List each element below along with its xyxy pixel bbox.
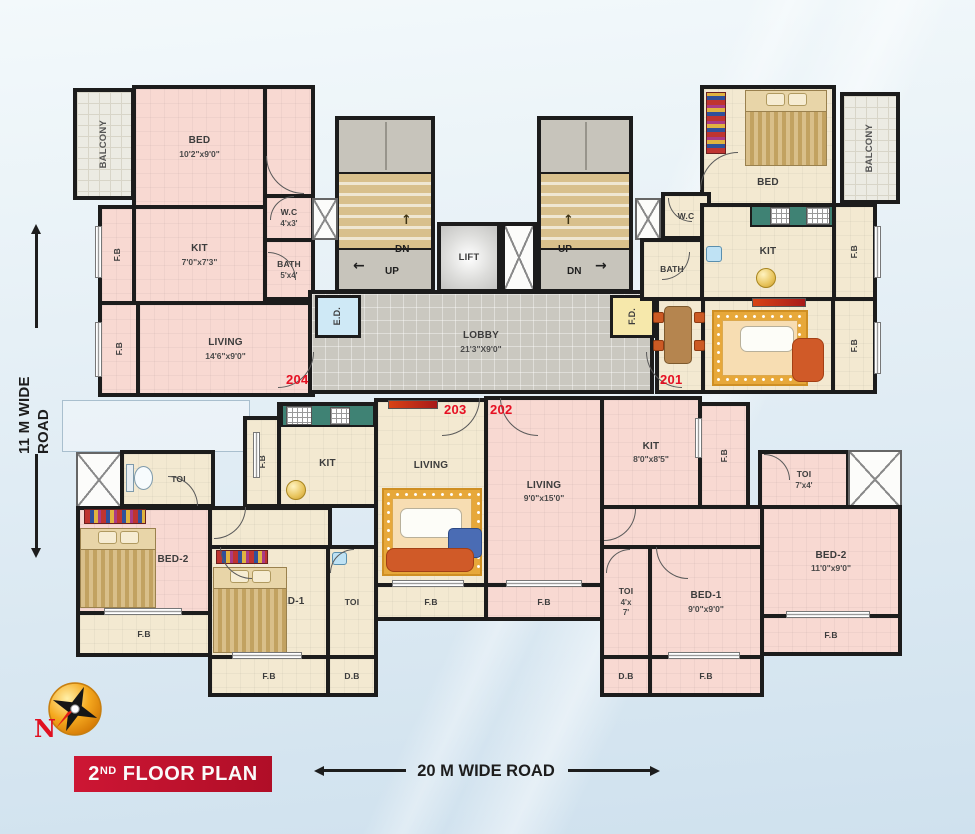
room-dims: 7' [623,608,629,618]
window-icon [253,432,260,478]
room-dims: 4'x [621,598,632,608]
room-label: LIVING [527,480,562,493]
terrace-outline [62,400,250,452]
rug-icon [84,509,146,524]
room-label: TOI [797,469,812,480]
left-road-label: 11 M WIDE ROAD [16,328,54,454]
fd-label: F.D. [627,308,638,325]
balcony-top-right: BALCONY [840,92,900,204]
room-label: LIVING [378,460,484,473]
room-label: BALCONY [864,124,876,172]
room-fb-203: F.B [374,583,488,621]
room-label: BED [189,135,211,148]
pillow-icon [746,91,826,109]
arrow-left-head [314,766,324,776]
column-shaft-left-icon [312,198,338,240]
staircase-right: ↑ UP DN → [537,116,633,293]
arrow-down-head [31,548,41,558]
room-label: F.B [824,630,837,641]
window-icon [392,580,464,587]
stove-icon [770,207,790,225]
electrical-duct: E.D. [315,295,361,338]
room-dims: 7'x4' [795,481,812,491]
room-dims: 14'6"x9'0" [205,351,245,361]
balcony-top-left: BALCONY [73,88,135,200]
pot-icon [286,480,306,500]
room-label: KIT [319,458,336,471]
column-shaft-right-icon [635,198,661,240]
blanket-icon [214,588,286,652]
arrow-line [568,769,650,772]
room-label: D.B [344,671,359,682]
room-fb-202-bottom-2: F.B [648,655,764,697]
room-label: BED-1 [690,590,721,603]
room-label: F.B [849,245,860,258]
room-label: F.B [699,671,712,682]
window-icon [104,608,182,615]
stair-divider [385,122,387,170]
arrow-line [324,769,406,772]
room-label: TOI [345,597,360,608]
window-icon [786,611,870,618]
unit-number-201: 201 [660,372,683,387]
room-dims: 9'0"x15'0" [524,493,564,503]
lift: LIFT [437,222,501,293]
room-db-202: D.B [600,655,652,697]
title-text: FLOOR PLAN [123,763,258,786]
room-dims: 8'0"x8'5" [633,454,669,464]
wardrobe-icon [706,92,726,154]
room-fb-202-bottom-1: F.B [484,583,604,621]
window-icon [695,418,702,458]
arrow-left-icon: ← [353,258,365,274]
coffee-table-icon [740,326,794,352]
fire-duct: F.D. [610,295,655,338]
stair-divider [585,122,587,170]
stair-up-label: UP [385,266,399,277]
room-label: F.B [112,248,123,261]
pot-icon [756,268,776,288]
window-icon [95,322,102,377]
room-fb-top-right-1: F.B [832,203,877,301]
title-ordinal: ND [100,765,117,777]
room-dims: 4'x3' [280,219,297,229]
room-label: KIT [760,246,777,259]
room-fb-top-right-2: F.B [831,297,877,394]
room-living-202: LIVING 9'0"x15'0" [484,396,604,587]
window-icon [506,580,582,587]
compass-icon [48,682,102,736]
room-label: LIVING [208,337,243,350]
stair-up-label: UP [558,244,572,255]
room-dims: 10'2"x9'0" [179,149,219,159]
room-kit-202: KIT 8'0"x8'5" [600,396,702,509]
arrow-line [35,454,38,549]
room-bed-top-left: BED 10'2"x9'0" [132,85,267,209]
stair-steps-icon [541,172,629,250]
room-label: F.B [537,597,550,608]
lobby-dims: 21'3"X9'0" [460,344,501,354]
room-label: BED-2 [815,550,846,563]
toilet-icon [134,466,153,490]
blanket-icon [746,111,826,165]
room-label: F.B [262,671,275,682]
window-icon [874,226,881,278]
room-label: F.B [114,342,125,355]
unit-number-204: 204 [286,372,309,387]
window-icon [95,226,102,278]
sink-icon [806,207,830,225]
planter-left-icon [76,452,122,508]
chair-icon [694,340,705,351]
stair-steps-icon [339,172,431,250]
sofa-icon [386,548,474,572]
room-dims: 9'0"x9'0" [688,604,724,614]
blanket-icon [81,549,155,607]
arrow-up-icon: ↑ [563,213,574,228]
staircase-left: ↑ DN ← UP [335,116,435,293]
room-fb-top-left-2: F.B [98,301,140,397]
room-fb-202-bottom-right: F.B [760,614,902,656]
bed-icon [80,528,156,608]
room-label: F.B [849,339,860,352]
stair-dn-label: DN [567,266,581,277]
room-label: TOI [619,586,634,597]
chair-icon [694,312,705,323]
compass-north-label: N [34,714,56,743]
room-label: BED-2 [157,554,188,567]
pillow-icon [81,529,155,547]
arrow-line [35,233,38,328]
planter-right-icon [848,450,902,509]
room-fb-204-bottom: F.B [208,655,330,697]
room-dims: 7'0"x7'3" [182,257,218,267]
stair-dn-label: DN [395,244,409,255]
room-dims: 11'0"x9'0" [811,563,851,573]
room-label: F.B [424,597,437,608]
room-label: D.B [618,671,633,682]
sofa-icon [792,338,824,382]
room-bed2-202: BED-2 11'0"x9'0" [760,505,902,618]
lobby-label: LOBBY [463,330,499,343]
arrow-right-head [650,766,660,776]
window-icon [668,652,740,659]
bed-icon [745,90,827,166]
basin-icon [706,246,722,262]
room-label: BED [757,177,779,198]
room-fb-top-left-1: F.B [98,205,136,305]
room-label: KIT [191,243,208,256]
window-icon [874,322,881,374]
room-label: F.B [719,449,730,462]
tv-unit-icon [752,298,806,307]
room-label: BALCONY [98,120,110,168]
unit-number-202: 202 [490,402,513,417]
arrow-up-icon: ↑ [401,213,412,228]
room-kit-top-left: KIT 7'0"x7'3" [132,205,267,305]
stove-icon [330,407,350,425]
room-label: KIT [643,441,660,454]
floor-plan-canvas: BALCONY BED 10'2"x9'0" F.B KIT 7'0"x7'3"… [0,0,975,834]
room-label: F.B [137,629,150,640]
room-db-204: D.B [326,655,378,697]
toilet-tank-icon [126,464,134,492]
ed-label: E.D. [332,307,343,325]
unit-number-203: 203 [444,402,467,417]
room-fb-lower-left: F.B [243,416,281,508]
title-number: 2 [88,763,100,786]
fridge-icon [286,406,312,425]
room-fb-202-mid: F.B [698,402,750,509]
bottom-road-label: 20 M WIDE ROAD [406,762,566,781]
duct-shaft-icon [501,222,537,293]
chair-icon [653,340,664,351]
floor-plan-title-banner: 2NDFLOOR PLAN [74,756,272,792]
arrow-right-icon: → [595,258,607,274]
room-fb-204-left: F.B [76,611,212,657]
window-icon [232,652,302,659]
bed-icon [213,567,287,653]
tv-unit-icon [388,400,438,409]
lift-label: LIFT [459,252,480,264]
chair-icon [653,312,664,323]
